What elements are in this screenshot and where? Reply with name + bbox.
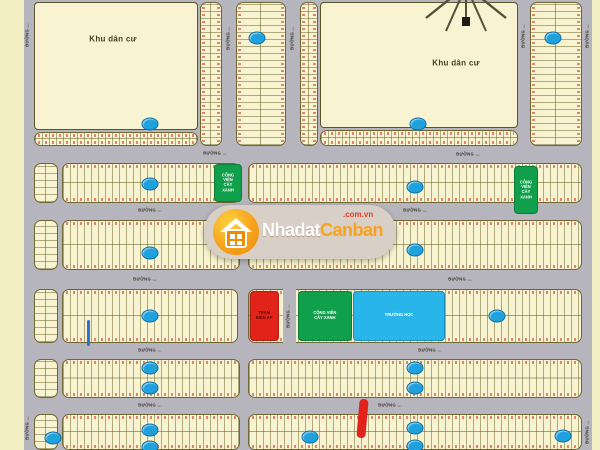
park-label: CÂY XANH xyxy=(520,190,532,199)
lot-block xyxy=(34,289,58,343)
brand-name-right: Canban xyxy=(320,220,383,240)
block-badge xyxy=(407,422,424,435)
substation-label: TRẠM xyxy=(259,311,271,315)
block-badge xyxy=(45,432,62,445)
road-label: ĐƯỜNG ... xyxy=(26,416,30,440)
road-label: ĐƯỜNG ... xyxy=(287,304,291,328)
brand-name: NhadatCanban xyxy=(262,220,383,241)
park-label: CÂY XANH xyxy=(222,183,234,192)
watermark: NhadatCanban .com.vn xyxy=(204,205,396,259)
park-zone: CÔNG VIÊN CÂY XANH xyxy=(298,291,352,341)
road-label: ĐƯỜNG ... xyxy=(418,349,442,353)
park-label: CÔNG VIÊN xyxy=(314,311,337,315)
block-badge xyxy=(142,424,159,437)
substation-zone: TRẠM BIẾN ÁP xyxy=(250,291,279,341)
lot-block xyxy=(34,163,58,203)
block-badge xyxy=(142,310,159,323)
lot-column xyxy=(236,2,286,146)
block-badge xyxy=(142,441,159,450)
road-label: ĐƯỜNG ... xyxy=(26,23,30,47)
road-label: ĐƯỜNG ... xyxy=(133,278,157,282)
block-badge xyxy=(142,362,159,375)
road-label: ĐƯỜNG ... xyxy=(403,209,427,213)
block-badge xyxy=(407,244,424,257)
road-label: ĐƯỜNG ... xyxy=(448,278,472,282)
block-badge xyxy=(142,382,159,395)
lot-block xyxy=(34,220,58,270)
block-badge xyxy=(407,362,424,375)
north-arrow-icon xyxy=(420,0,512,36)
lot-column xyxy=(530,2,582,146)
block-badge xyxy=(407,382,424,395)
road-label: ĐƯỜNG ... xyxy=(586,420,590,444)
lot-column xyxy=(300,2,318,146)
road-label: ĐƯỜNG ... xyxy=(138,209,162,213)
residential-area-block: Khu dân cư xyxy=(34,2,198,130)
road-label: ĐƯỜNG ... xyxy=(291,26,295,50)
brand-domain: .com.vn xyxy=(343,210,373,219)
highlighted-lot-marker-blue xyxy=(87,320,90,346)
block-badge xyxy=(410,118,427,131)
road-label: ĐƯỜNG ... xyxy=(227,26,231,50)
park-zone: CÔNG VIÊN CÂY XANH xyxy=(214,164,242,202)
block-badge xyxy=(489,310,506,323)
road-label: ĐƯỜNG ... xyxy=(456,153,480,157)
block-badge xyxy=(545,32,562,45)
lot-strip xyxy=(34,132,198,146)
brand-house-icon xyxy=(213,209,259,255)
park-label: CÔNG VIÊN xyxy=(520,180,532,189)
park-label: CÔNG VIÊN xyxy=(222,173,234,182)
road-label: ĐƯỜNG ... xyxy=(138,349,162,353)
substation-label: BIẾN ÁP xyxy=(256,316,273,320)
block-badge xyxy=(249,32,266,45)
road-label: ĐƯỜNG ... xyxy=(522,24,526,48)
block-badge xyxy=(302,431,319,444)
block-badge xyxy=(407,440,424,450)
block-badge xyxy=(142,118,159,131)
block-badge xyxy=(407,181,424,194)
subdivision-map: Khu dân cư Khu dân cư CÔNG VIÊN CÂY XANH… xyxy=(0,0,600,450)
lot-column xyxy=(200,2,222,146)
park-zone: CÔNG VIÊN CÂY XANH xyxy=(514,166,538,214)
road-label: ĐƯỜNG ... xyxy=(586,24,590,48)
road-label: ĐƯỜNG ... xyxy=(203,152,227,156)
region-label: Khu dân cư xyxy=(89,35,136,44)
lot-strip xyxy=(320,130,518,146)
brand-name-left: Nhadat xyxy=(262,220,320,240)
school-label: TRƯỜNG HỌC xyxy=(385,314,414,318)
block-badge xyxy=(142,178,159,191)
region-label: Khu dân cư xyxy=(432,59,479,68)
road-label: ĐƯỜNG ... xyxy=(378,404,402,408)
block-badge xyxy=(555,430,572,443)
park-label: CÂY XANH xyxy=(314,316,335,320)
lot-block xyxy=(34,359,58,398)
road-label: ĐƯỜNG ... xyxy=(138,404,162,408)
block-badge xyxy=(142,247,159,260)
school-zone: TRƯỜNG HỌC xyxy=(353,291,445,341)
